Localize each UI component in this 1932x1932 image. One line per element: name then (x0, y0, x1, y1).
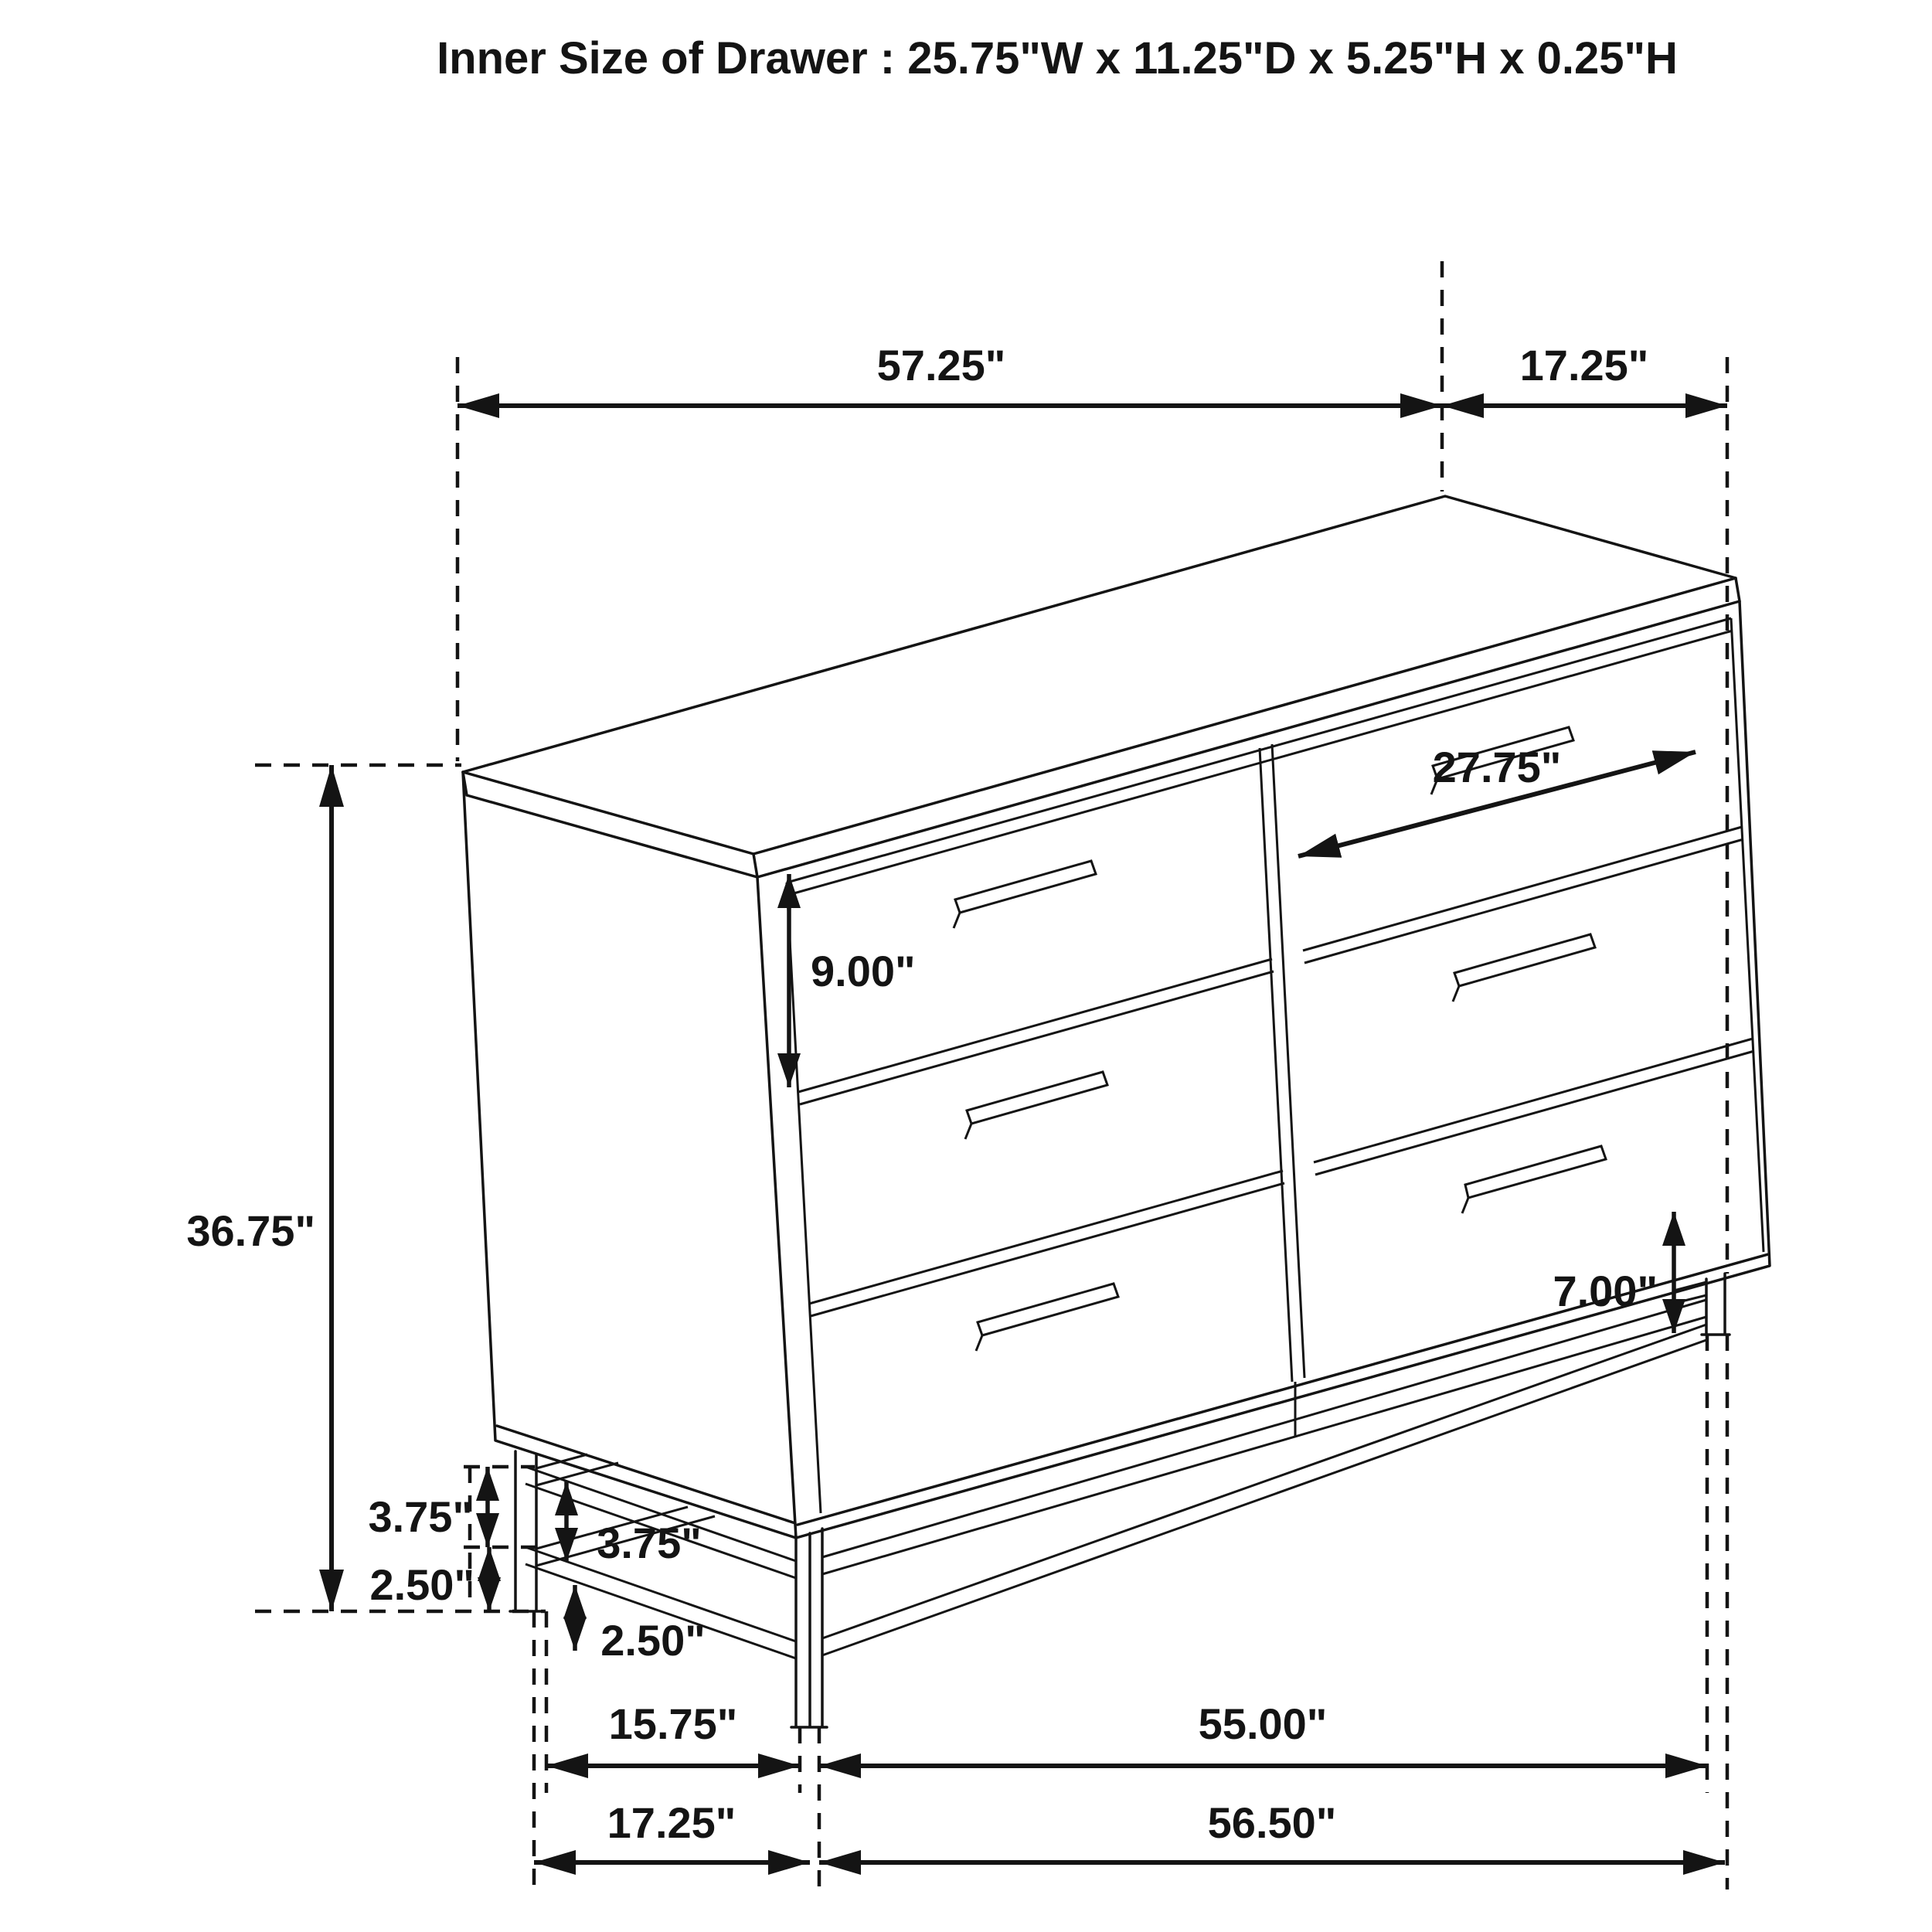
label-leg-height: 7.00" (1553, 1267, 1658, 1315)
dim-bottom-depth: 17.25" (534, 1798, 810, 1862)
label-drawer-height: 9.00" (811, 947, 916, 995)
label-overall-width: 57.25" (877, 341, 1006, 389)
label-drawer-width: 27.75" (1433, 743, 1562, 791)
dim-leg-frame-lower: 2.50" (575, 1585, 706, 1665)
dim-overall-depth: 17.25" (1442, 341, 1727, 406)
dim-base-depth: 15.75" (546, 1699, 800, 1766)
dim-bottom-width: 56.50" (819, 1798, 1725, 1862)
cabinet-top-face (463, 496, 1736, 854)
left-reference-lines (255, 765, 549, 1611)
dim-overall-height: 36.75" (186, 765, 332, 1611)
label-bottom-width: 56.50" (1208, 1798, 1337, 1847)
label-left-frame-upper: 3.75" (368, 1492, 473, 1541)
dim-drawer-height: 9.00" (789, 874, 916, 1087)
base-frame-rails (526, 1282, 1706, 1658)
cabinet-top-slab-edge (463, 578, 1740, 877)
dim-drawer-width: 27.75" (1298, 743, 1696, 856)
label-base-depth: 15.75" (609, 1699, 738, 1748)
cabinet-front-panel (796, 601, 1770, 1538)
label-leg-frame-lower: 2.50" (600, 1616, 706, 1665)
drawer-grid (787, 618, 1764, 1513)
dim-leg-frame-upper: 3.75" (566, 1481, 702, 1567)
label-left-frame-lower: 2.50" (369, 1560, 474, 1609)
cabinet-left-panel (463, 772, 796, 1538)
dimension-annotations: 57.25" 17.25" 36.75" 9.00" 27.75" 7.00" … (186, 341, 1727, 1862)
dim-leg-height: 7.00" (1553, 1212, 1674, 1333)
dim-base-width: 55.00" (819, 1699, 1707, 1766)
dim-overall-width: 57.25" (457, 341, 1442, 406)
label-leg-frame-upper: 3.75" (597, 1519, 702, 1567)
label-base-width: 55.00" (1199, 1699, 1328, 1748)
label-overall-depth: 17.25" (1520, 341, 1649, 389)
furniture-dimension-diagram: Inner Size of Drawer : 25.75"W x 11.25"D… (0, 0, 1932, 1932)
diagram-title: Inner Size of Drawer : 25.75"W x 11.25"D… (437, 33, 1678, 83)
label-overall-height: 36.75" (186, 1206, 315, 1255)
label-bottom-depth: 17.25" (607, 1798, 736, 1847)
extension-lines (255, 261, 1727, 1889)
